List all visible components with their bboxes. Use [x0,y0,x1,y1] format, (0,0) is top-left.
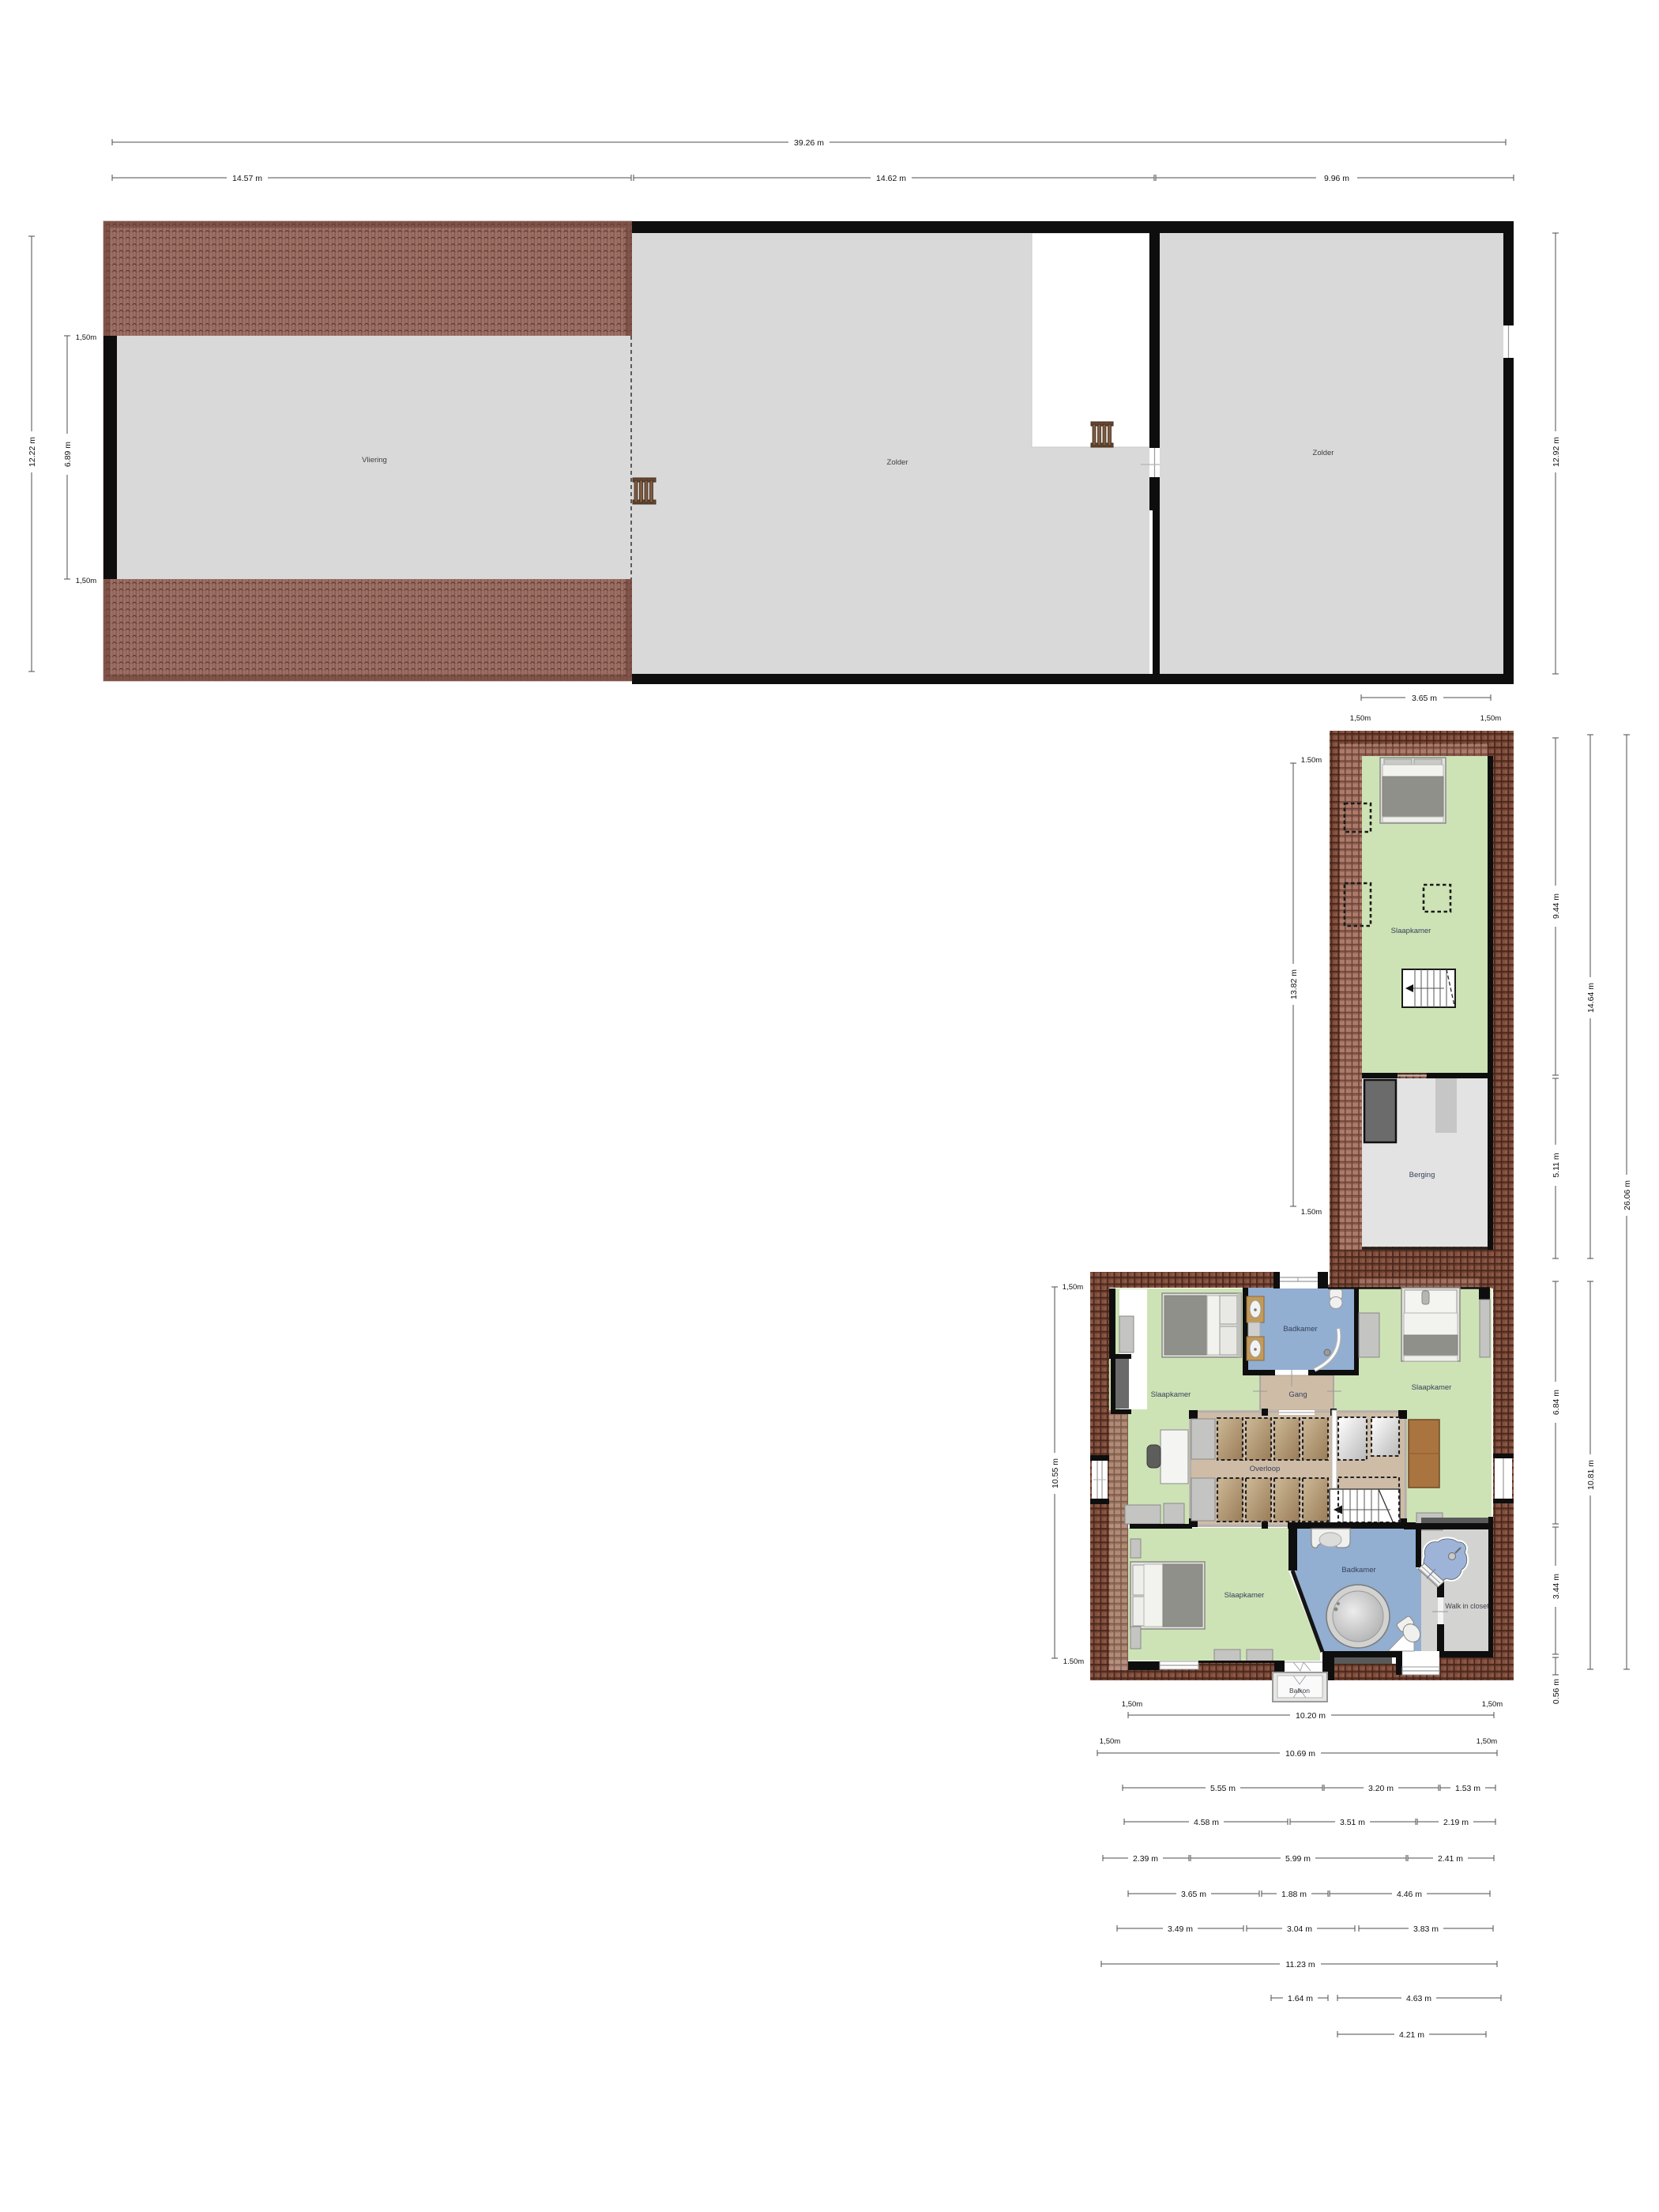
svg-text:4.63 m: 4.63 m [1406,1994,1431,2003]
svg-text:3.51 m: 3.51 m [1340,1818,1365,1827]
svg-text:1.88 m: 1.88 m [1281,1890,1307,1899]
svg-text:1.53 m: 1.53 m [1455,1784,1480,1793]
svg-text:12.22 m: 12.22 m [28,437,37,467]
svg-text:1.64 m: 1.64 m [1288,1994,1313,2003]
svg-text:1,50m: 1,50m [1482,1700,1503,1709]
svg-text:14.57 m: 14.57 m [232,174,262,183]
svg-text:1,50m: 1,50m [1122,1700,1142,1709]
svg-text:3.83 m: 3.83 m [1413,1924,1439,1934]
svg-text:4.58 m: 4.58 m [1194,1818,1219,1827]
svg-text:10.81 m: 10.81 m [1586,1460,1596,1490]
svg-text:Balkon: Balkon [1289,1687,1310,1695]
svg-text:1.50m: 1.50m [1301,756,1322,765]
svg-text:9.96 m: 9.96 m [1324,174,1349,183]
svg-text:3.20 m: 3.20 m [1368,1784,1394,1793]
svg-text:Slaapkamer: Slaapkamer [1151,1390,1191,1399]
svg-text:Slaapkamer: Slaapkamer [1224,1591,1265,1600]
svg-text:4.46 m: 4.46 m [1397,1890,1422,1899]
svg-text:6.89 m: 6.89 m [63,442,73,467]
svg-text:Zolder: Zolder [1313,449,1334,457]
svg-text:5.11 m: 5.11 m [1552,1153,1561,1178]
svg-text:1,50m: 1,50m [76,577,96,585]
svg-text:10.55 m: 10.55 m [1051,1458,1060,1488]
svg-text:3.44 m: 3.44 m [1552,1574,1561,1599]
svg-text:14.62 m: 14.62 m [876,174,906,183]
svg-text:1,50m: 1,50m [1350,714,1371,723]
svg-text:Vliering: Vliering [362,456,387,465]
svg-text:0.56 m: 0.56 m [1552,1679,1561,1704]
svg-text:14.64 m: 14.64 m [1586,983,1596,1013]
svg-text:2.19 m: 2.19 m [1443,1818,1469,1827]
svg-text:3.65 m: 3.65 m [1181,1890,1206,1899]
svg-text:3.04 m: 3.04 m [1287,1924,1312,1934]
svg-text:Zolder: Zolder [887,458,908,467]
svg-text:10.20 m: 10.20 m [1296,1711,1326,1721]
svg-text:Badkamer: Badkamer [1283,1325,1317,1334]
svg-text:12.92 m: 12.92 m [1552,437,1561,467]
svg-text:1,50m: 1,50m [1480,714,1501,723]
svg-text:6.84 m: 6.84 m [1552,1390,1561,1415]
svg-text:1,50m: 1,50m [1063,1283,1083,1292]
svg-text:Overloop: Overloop [1250,1465,1281,1473]
svg-text:1.50m: 1.50m [1063,1657,1084,1666]
svg-text:11.23 m: 11.23 m [1285,1960,1315,1969]
svg-text:9.44 m: 9.44 m [1552,893,1561,919]
svg-text:Gang: Gang [1288,1390,1307,1399]
svg-text:Slaapkamer: Slaapkamer [1391,927,1431,935]
svg-text:1.50m: 1.50m [1301,1208,1322,1217]
svg-text:5.99 m: 5.99 m [1285,1854,1311,1864]
svg-text:Berging: Berging [1409,1171,1435,1179]
svg-text:5.55 m: 5.55 m [1210,1784,1236,1793]
svg-text:Badkamer: Badkamer [1341,1566,1375,1574]
svg-text:3.49 m: 3.49 m [1168,1924,1193,1934]
svg-text:1,50m: 1,50m [76,333,96,342]
svg-text:1,50m: 1,50m [1477,1737,1497,1746]
svg-text:39.26 m: 39.26 m [794,138,824,148]
svg-text:13.82 m: 13.82 m [1289,969,1299,999]
svg-text:3.65 m: 3.65 m [1412,694,1437,703]
svg-text:2.41 m: 2.41 m [1438,1854,1463,1864]
svg-text:1,50m: 1,50m [1100,1737,1120,1746]
svg-text:4.21 m: 4.21 m [1399,2030,1424,2040]
svg-text:26.06 m: 26.06 m [1623,1180,1632,1210]
svg-text:10.69 m: 10.69 m [1285,1749,1315,1759]
svg-text:Slaapkamer: Slaapkamer [1412,1383,1452,1392]
svg-text:2.39 m: 2.39 m [1133,1854,1158,1864]
svg-text:Walk in closet: Walk in closet [1445,1602,1489,1610]
